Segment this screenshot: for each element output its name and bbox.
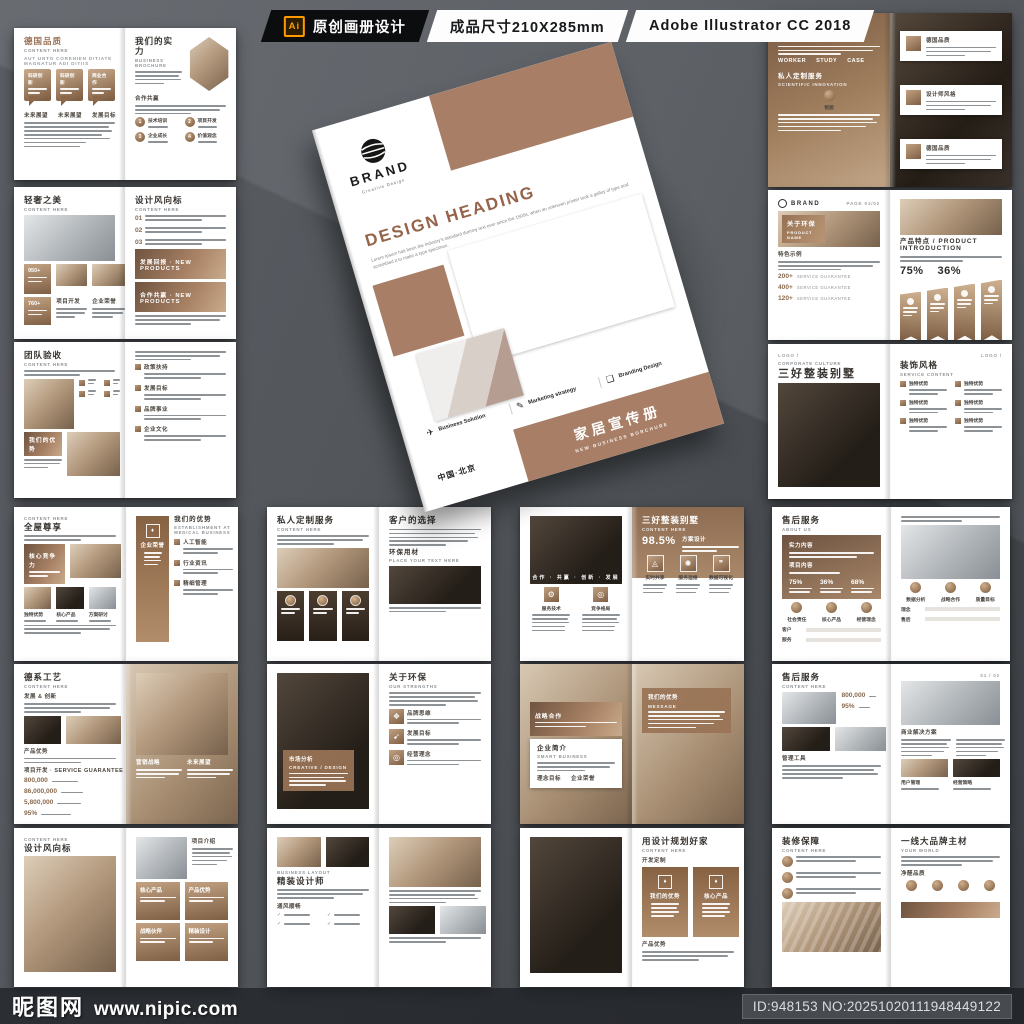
text-line (389, 544, 446, 546)
spread-private-custom: 私人定制服务CONTENT HERE客户的选择环保用材PLACE YOUR TE… (267, 507, 491, 661)
text-line (144, 564, 158, 566)
brochure-page: LOGO /装饰风格SERVICE CONTENT独特优势独特优势独特优势独特优… (890, 344, 1012, 499)
title-text: 设计风向标 (24, 844, 116, 854)
white-card-title: 德国品质 (926, 144, 996, 152)
header-segment-size: 成品尺寸210X285mm (427, 10, 628, 42)
text-lines (903, 307, 918, 316)
text-line (61, 792, 83, 794)
text-lines (389, 937, 481, 943)
feature-marker (900, 400, 906, 406)
text-lines (537, 762, 615, 771)
text-lines (135, 105, 226, 114)
panel-label: 企业荣誉 (141, 541, 165, 549)
title-text: 我们的优势 (174, 516, 233, 523)
split-row: 800,00095% (782, 692, 881, 724)
text-line (900, 260, 963, 262)
text-line (144, 439, 201, 441)
split-row: 我们的实力BUSINESS BROCHURE (135, 37, 226, 91)
flag-icon (934, 294, 941, 301)
text-line (52, 781, 78, 783)
text-lines (192, 848, 233, 865)
split-col (835, 727, 886, 751)
numbered-body: 企业成长 (148, 132, 177, 143)
title-text: 三好整装别墅 (778, 368, 880, 381)
text-line (407, 764, 459, 766)
bronze-overlay-box: 我们的优势MESSAGE (642, 688, 731, 733)
text-line (407, 743, 459, 745)
progress-fill (925, 617, 970, 621)
feature-cell (79, 379, 95, 386)
label-chip: 企业荣誉 (571, 774, 595, 782)
photo-placeholder (782, 692, 836, 724)
content-card (342, 591, 369, 641)
section-body: 品牌思维 (407, 709, 481, 725)
banner-label-box: 关于环保PRODUCT NAME (782, 215, 825, 243)
section-marker (174, 580, 180, 586)
text-line (926, 55, 965, 57)
content-card: 760+ (24, 297, 51, 325)
numbered-item: 4价值观念 (185, 132, 227, 143)
text-line (964, 430, 993, 432)
text-line (144, 560, 161, 562)
text-line (183, 569, 233, 571)
text-lines (651, 903, 680, 916)
section-marker (782, 888, 793, 899)
text-line (957, 299, 972, 301)
section-body: 政策扶持 (144, 363, 226, 379)
section-body: 发展目标 (407, 729, 481, 745)
text-line (24, 539, 81, 541)
section-marker (174, 560, 180, 566)
text-line (820, 588, 843, 590)
label-chip: 产品优势 (24, 747, 48, 755)
text-line (144, 418, 201, 420)
vertical-bronze-panel: ♦核心产品 (693, 867, 739, 937)
text-line (135, 351, 226, 353)
icon-square: ❞ (713, 555, 730, 572)
text-line (956, 751, 999, 753)
title-subtext: OUR STRENGTHS (389, 684, 481, 689)
icon-square: ◎ (593, 587, 608, 602)
numbered-label: 企业成长 (148, 132, 177, 139)
check-list (277, 913, 369, 927)
text-lines (796, 856, 881, 862)
text-lines (24, 459, 62, 468)
progress-bars: 理念售后 (901, 606, 1000, 623)
brochure-page: 项目介绍核心产品产品优势战略伙伴精装设计 (126, 828, 238, 987)
brochure-page: 轻奢之美CONTENT HERE950+760+项目开发企业荣誉 (14, 187, 125, 339)
section-number: 01 (135, 215, 142, 222)
stat-item: 5,800,000 (24, 799, 116, 806)
white-card-list: 德国品质设计师风格德国品质 (900, 22, 1002, 178)
label-chip: 未来展望 (24, 111, 48, 119)
section-item: 02 (135, 227, 226, 234)
flag-banner-row (900, 280, 1002, 341)
text-lines (144, 435, 226, 441)
text-line (313, 608, 332, 610)
text-line (135, 71, 182, 73)
text-lines (88, 390, 95, 396)
split-col (67, 432, 120, 476)
section-title: 客户的选择 (389, 516, 481, 526)
text-lines (789, 572, 874, 574)
text-line (702, 911, 730, 913)
icon-card-label: 数据可视化 (709, 574, 733, 581)
section-title: CONTENT HERE全屋尊享 (24, 516, 116, 532)
feature-marker (900, 381, 906, 387)
mini-photo-item: 独特优势 (24, 587, 51, 622)
text-line (140, 900, 165, 902)
feature-marker (104, 380, 110, 386)
label-row: 企业荣誉 (92, 297, 125, 305)
text-line (926, 101, 996, 103)
text-lines (113, 390, 120, 396)
text-lines (407, 760, 481, 766)
section-item (782, 872, 881, 883)
image-id-badge: ID:948153 NO:20251020111948449122 (742, 994, 1012, 1019)
bronze-band: 合作共赢 · NEW PRODUCTS (135, 282, 226, 312)
section-title: 设计风向标CONTENT HERE (135, 196, 226, 212)
split-col: 未来展望 (187, 758, 233, 778)
text-line (135, 109, 220, 111)
title-text: 设计风向标 (135, 196, 226, 206)
content-card: 精装设计 (185, 923, 229, 961)
flag-icon (961, 290, 968, 297)
mini-photo-row (277, 837, 369, 867)
text-lines (901, 788, 948, 790)
stat-item: 120+SERVICE GUARANTEE (778, 295, 880, 302)
text-line (778, 265, 873, 267)
text-line (389, 529, 481, 531)
text-line (192, 860, 228, 862)
photo-placeholder (389, 837, 481, 887)
photo-placeholder (530, 837, 622, 973)
text-line (189, 938, 225, 940)
text-line (859, 707, 870, 709)
label-row: 未来展望未来展望发展目标 (24, 111, 115, 119)
label-row: 商业解决方案 (901, 728, 1000, 736)
text-line (281, 608, 300, 610)
text-lines (113, 379, 120, 385)
stat-label: SERVICE GUARANTEE (797, 285, 851, 290)
percentage-value: 98.5% (642, 535, 676, 547)
split-row: 760+项目开发企业荣誉 (24, 297, 115, 325)
text-line (926, 109, 965, 111)
cover-feature-label: Branding Design (618, 361, 663, 380)
text-lines (135, 71, 182, 84)
feature-label: 独特优势 (909, 417, 947, 424)
text-line (778, 126, 866, 128)
progress-bars: 客户服务 (782, 626, 881, 643)
text-line (145, 219, 201, 221)
numbered-item: 3企业成长 (135, 132, 177, 143)
content-card: 战略伙伴 (136, 923, 180, 961)
brochure-page: 数据分析战略合作质量目标理念售后 (891, 507, 1010, 661)
text-line (24, 146, 80, 148)
text-line (648, 723, 714, 725)
software-text: Adobe Illustrator CC 2018 (649, 18, 851, 34)
photo-placeholder (782, 902, 881, 952)
section-title: 产品特点 / PRODUCT INTRODUCTION (900, 238, 1002, 253)
medallion-icon (958, 880, 969, 891)
section-label: 行业资讯 (183, 559, 233, 567)
photo-placeholder (389, 906, 435, 934)
text-lines (140, 897, 176, 903)
number-circle: 3 (135, 132, 145, 142)
hexagon-photo (187, 37, 231, 91)
text-line (140, 938, 176, 940)
medallion-label: 悦居 (824, 104, 834, 111)
split-col: ♦我们的优势 (642, 867, 688, 937)
stat-value: 5,800,000 (24, 799, 53, 806)
text-line (535, 726, 586, 728)
text-line (702, 907, 729, 909)
feature-cell: 独特优势 (900, 380, 947, 395)
label-chip: 合作共赢 (135, 94, 159, 102)
brochure-page: LOGO /CORPORATE CULTURE三好整装别墅 (768, 344, 890, 499)
text-line (136, 777, 165, 779)
section-title: 我们的实力BUSINESS BROCHURE (135, 37, 182, 68)
finished-size-text: 成品尺寸210X285mm (450, 16, 605, 37)
text-line (136, 773, 179, 775)
label-row: 发展 & 创新 (24, 692, 116, 700)
text-line (820, 591, 841, 593)
section-title: 关于环保OUR STRENGTHS (389, 673, 481, 689)
section-title: 团队验收CONTENT HERE (24, 351, 115, 367)
text-lines (92, 308, 125, 317)
brochure-page: BUSINESS LAYOUT精装设计师通风顺畅 (267, 828, 379, 987)
medallion-item: 社会责任 (782, 602, 812, 623)
text-lines (334, 914, 369, 916)
text-line (113, 383, 119, 385)
text-lines (901, 739, 951, 756)
title-subtext: ABOUT US (782, 527, 881, 532)
text-line (289, 784, 326, 786)
brochure-page: 营销战略未来展望 (126, 664, 238, 824)
percentage-row: 98.5% (642, 535, 677, 547)
photo-placeholder (24, 716, 61, 744)
header-title-text: 原创画册设计 (313, 16, 406, 37)
text-lines (183, 569, 233, 575)
label-chip: 未来展望 (58, 111, 82, 119)
text-line (144, 394, 226, 396)
card-row: 核心产品产品优势 (136, 882, 228, 920)
flag-icon (988, 286, 995, 293)
section-body (145, 239, 226, 245)
text-line (901, 747, 949, 749)
text-lines (88, 379, 95, 385)
spread-team-acceptance: 团队验收CONTENT HERE我们的优势政策扶持发展目标品牌事业企业文化 (14, 342, 236, 498)
stat-item: 800,000 (24, 777, 116, 784)
text-line (135, 355, 220, 357)
text-line (407, 739, 481, 741)
text-line (189, 900, 214, 902)
stat-label: SERVICE GUARANTEE (797, 296, 851, 301)
text-line (92, 92, 104, 94)
panel-icon: ♦ (658, 875, 672, 889)
banner-title: 关于环保 (787, 219, 820, 228)
section-label: 品牌思维 (407, 709, 481, 717)
feature-cell (104, 379, 120, 386)
brochure-page: 关于环保OUR STRENGTHS❖品牌思维➹发展目标◎经营理念 (379, 664, 491, 824)
icon-card-label: 服务运维 (678, 574, 697, 581)
section-item: 发展目标 (135, 384, 226, 400)
percentage-row: 75%36% (900, 265, 1002, 277)
section-item: 01 (135, 215, 226, 222)
mini-photo-item: 经营策略 (953, 759, 1000, 790)
photo-placeholder (89, 587, 116, 609)
photo-placeholder (277, 837, 321, 867)
section-item: 品牌事业 (135, 405, 226, 421)
text-line (183, 572, 218, 574)
label-row: 理念目标企业荣誉 (537, 774, 615, 782)
section-item: 人工智能 (174, 538, 233, 554)
text-line (24, 711, 81, 713)
card-row: 950+ (24, 264, 51, 294)
logo-ring-icon (778, 199, 787, 208)
text-line (796, 872, 881, 874)
text-line (140, 897, 176, 899)
section-icon: ❖ (389, 709, 404, 724)
split-col (79, 379, 120, 429)
text-lines (984, 295, 999, 304)
text-line (281, 612, 295, 614)
text-line (24, 628, 110, 630)
label-row: 通风顺畅 (277, 902, 369, 910)
brochure-page: 产品特点 / PRODUCT INTRODUCTION75%36% (890, 190, 1012, 340)
text-line (92, 88, 111, 90)
title-text: 德国品质 (24, 37, 115, 47)
text-line (651, 907, 678, 909)
text-line (24, 535, 116, 537)
section-label: 发展目标 (144, 384, 226, 392)
text-line (957, 307, 966, 309)
split-col: 营销战略 (136, 758, 182, 778)
text-line (24, 625, 116, 627)
text-lines (24, 370, 115, 376)
label-chip: 商业解决方案 (901, 728, 937, 736)
mini-photo-item: 方案研讨 (89, 587, 116, 622)
brochure-page: CONTENT HERE设计风向标 (14, 828, 126, 987)
text-lines (144, 394, 226, 400)
vertical-bronze-panel: ♦我们的优势 (642, 867, 688, 937)
bronze-band (901, 902, 1000, 918)
text-line (407, 719, 481, 721)
numbered-label: 项目开发 (198, 117, 227, 124)
label-chip: 管理工具 (782, 754, 806, 762)
page-number: PAGE 01/02 (847, 201, 880, 206)
check-item (277, 913, 319, 918)
text-line (313, 612, 327, 614)
section-list (782, 856, 881, 899)
text-lines (789, 552, 874, 558)
cover-location: 中国·北京 (436, 462, 477, 484)
spread-business-layout: BUSINESS LAYOUT精装设计师通风顺畅 (267, 828, 491, 987)
card-icon (906, 36, 921, 51)
title-subtext: CONTENT HERE (24, 48, 115, 53)
text-line (346, 612, 360, 614)
text-line (778, 122, 877, 124)
mini-photo-item (326, 837, 370, 867)
feature-cell (104, 390, 120, 397)
text-line (778, 261, 880, 263)
text-line (148, 141, 168, 143)
text-line (778, 114, 880, 116)
text-line (778, 53, 841, 55)
text-line (346, 608, 365, 610)
text-lines (144, 415, 226, 421)
card-icon (906, 144, 921, 159)
text-lines (909, 426, 947, 432)
text-line (532, 622, 569, 624)
panel-icon: ♦ (709, 875, 723, 889)
medallion-label: 核心产品 (822, 616, 841, 623)
section-item: 行业资讯 (174, 559, 233, 575)
text-line (643, 584, 666, 586)
brochure-page: BRANDPAGE 01/02关于环保PRODUCT NAME特色示例200+S… (768, 190, 890, 340)
brochure-page: 设计风向标CONTENT HERE010203发展回报 · NEW PRODUC… (125, 187, 236, 339)
text-line (407, 760, 481, 762)
medallion-icon (861, 602, 872, 613)
overlay-title: 我们的优势 (648, 693, 725, 701)
medallion-row: 数据分析战略合作质量目标 (901, 582, 1000, 603)
progress-fill (806, 638, 851, 642)
section-item: ◎经营理念 (389, 750, 481, 766)
text-lines (859, 707, 886, 709)
text-line (537, 770, 585, 772)
mini-photo-item (277, 837, 321, 867)
spread-design-trend: CONTENT HERE设计风向标项目介绍核心产品产品优势战略伙伴精装设计 (14, 828, 238, 987)
text-line (648, 727, 696, 729)
progress-label: 售后 (901, 616, 921, 623)
text-lines (144, 552, 162, 565)
white-card: 德国品质 (900, 139, 1002, 169)
mini-photo-row: 独特优势核心产品方案研讨 (24, 587, 116, 622)
text-lines (289, 773, 348, 786)
split-row: 950+ (24, 264, 115, 294)
label-chip: 未来展望 (187, 758, 211, 766)
text-line (643, 592, 663, 594)
label-chip: CASE (847, 58, 864, 64)
text-line (277, 889, 369, 891)
text-line (389, 533, 475, 535)
section-body (796, 888, 881, 894)
icon-square: ◬ (647, 555, 664, 572)
text-lines (56, 308, 87, 317)
feature-label: 独特优势 (964, 399, 1002, 406)
card-medallion (285, 595, 296, 606)
title-text: 用设计规划好家 (642, 837, 734, 847)
text-line (187, 777, 216, 779)
stat-item: 95% (24, 810, 116, 817)
brochure-page: 德国品质设计师风格德国品质 (890, 13, 1012, 187)
overlay-subtitle: CREATIVE / DESIGN (289, 765, 348, 770)
section-marker (135, 385, 141, 391)
mini-photo-item: 核心产品 (56, 587, 83, 622)
photo-placeholder (900, 199, 1002, 235)
text-line (676, 592, 696, 594)
text-line (88, 383, 94, 385)
text-line (144, 415, 226, 417)
text-line (782, 769, 874, 771)
numbered-body: 价值观念 (198, 132, 227, 143)
split-col (187, 37, 231, 91)
section-title: 售后服务ABOUT US (782, 516, 881, 532)
text-line (144, 398, 201, 400)
section-body (796, 872, 881, 878)
text-line (778, 50, 873, 52)
text-line (676, 584, 699, 586)
